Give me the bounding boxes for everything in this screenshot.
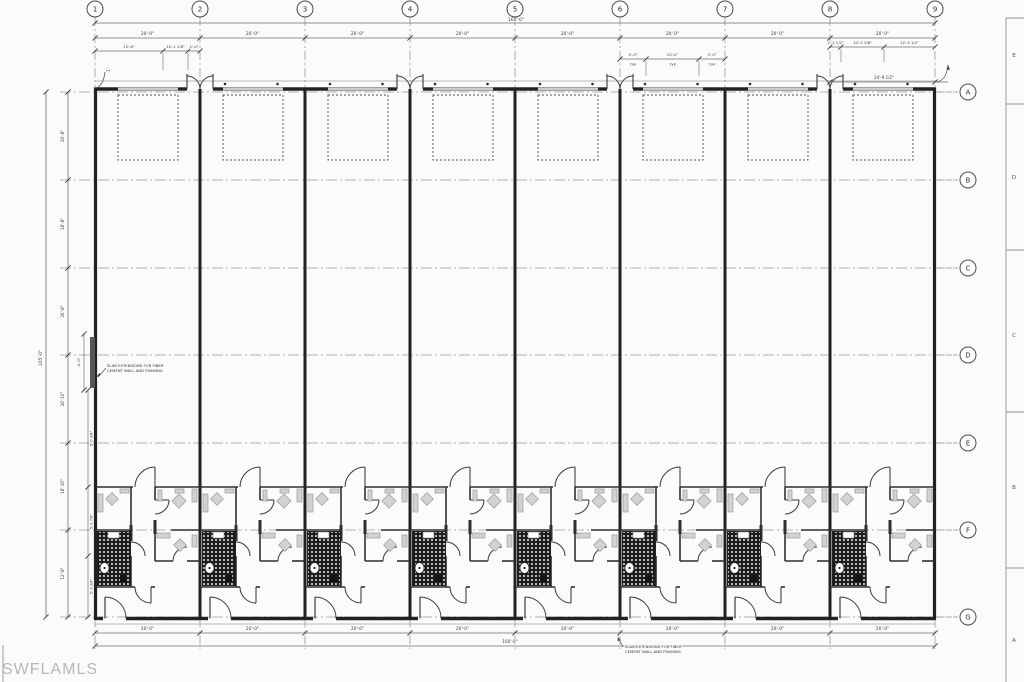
svg-text:E: E [966, 439, 970, 447]
svg-text:20'-0": 20'-0" [666, 626, 679, 632]
svg-text:CEMENT WALL AND FRAMING: CEMENT WALL AND FRAMING [625, 649, 681, 654]
svg-text:2'-1 1/2": 2'-1 1/2" [827, 40, 844, 45]
svg-text:20'-0": 20'-0" [351, 626, 364, 632]
svg-text:26'-8": 26'-8" [60, 305, 65, 317]
svg-text:20'-0": 20'-0" [141, 626, 154, 632]
svg-text:2: 2 [198, 5, 203, 14]
svg-text:4'-0": 4'-0" [76, 357, 81, 366]
svg-text:8'-0 3/4": 8'-0 3/4" [90, 430, 94, 446]
svg-text:1: 1 [93, 5, 98, 14]
svg-text:5: 5 [513, 5, 518, 14]
svg-text:12'-4 1/2": 12'-4 1/2" [900, 40, 919, 45]
svg-text:5'-0": 5'-0" [708, 52, 717, 57]
svg-text:D: D [965, 351, 970, 359]
svg-text:24'-9 1/2": 24'-9 1/2" [874, 75, 894, 80]
svg-text:F: F [966, 526, 970, 534]
svg-text:105'-0": 105'-0" [38, 350, 44, 366]
svg-text:20'-0": 20'-0" [771, 31, 784, 37]
svg-text:20'-0": 20'-0" [351, 31, 364, 37]
svg-text:TYP: TYP [708, 63, 716, 67]
svg-text:D: D [1012, 175, 1016, 181]
svg-text:20'-0": 20'-0" [456, 626, 469, 632]
svg-text:TYP: TYP [668, 63, 676, 67]
svg-text:7: 7 [723, 5, 728, 14]
svg-text:160'-0": 160'-0" [502, 639, 517, 644]
svg-text:10'-0": 10'-0" [667, 52, 679, 57]
svg-text:20'-0": 20'-0" [141, 31, 154, 37]
svg-text:5'-3 3/4": 5'-3 3/4" [90, 578, 94, 594]
svg-text:20'-0": 20'-0" [561, 31, 574, 37]
svg-text:26'-8": 26'-8" [60, 130, 65, 142]
svg-text:B: B [966, 176, 971, 184]
svg-text:18'-10": 18'-10" [60, 479, 65, 494]
svg-text:TYP: TYP [629, 63, 637, 67]
svg-text:5'-1 7/8": 5'-1 7/8" [90, 513, 94, 529]
drawing-sheet: EDCBA1'160'-0"20'-0"20'-0"20'-0"20'-0"20… [0, 0, 1024, 682]
svg-text:12'-8": 12'-8" [123, 44, 135, 49]
svg-text:G: G [965, 613, 970, 621]
svg-text:12'-8": 12'-8" [60, 567, 65, 579]
svg-text:8: 8 [828, 5, 833, 14]
svg-text:10'-2 3/8": 10'-2 3/8" [853, 40, 872, 45]
svg-text:C: C [966, 264, 971, 272]
svg-text:A: A [966, 88, 971, 96]
svg-text:A: A [1012, 638, 1016, 644]
svg-text:C: C [1012, 333, 1016, 339]
svg-text:CEMENT WALL AND FRAMING: CEMENT WALL AND FRAMING [107, 368, 163, 373]
svg-text:6: 6 [618, 5, 623, 14]
svg-text:20'-0": 20'-0" [876, 626, 889, 632]
svg-text:4: 4 [408, 5, 413, 14]
svg-text:18'-8": 18'-8" [60, 218, 65, 230]
watermark: SWFLAMLS [2, 661, 98, 679]
svg-text:20'-0": 20'-0" [876, 31, 889, 37]
svg-text:160'-0": 160'-0" [508, 17, 524, 23]
svg-text:9: 9 [933, 5, 938, 14]
svg-text:2'-0": 2'-0" [190, 44, 199, 49]
svg-text:26'-10": 26'-10" [60, 392, 65, 407]
svg-text:10'-1 1/8": 10'-1 1/8" [166, 44, 185, 49]
svg-text:1': 1' [106, 68, 111, 72]
floor-plan-drawing: EDCBA1'160'-0"20'-0"20'-0"20'-0"20'-0"20… [0, 0, 1024, 682]
svg-text:20'-0": 20'-0" [456, 31, 469, 37]
svg-text:20'-0": 20'-0" [246, 626, 259, 632]
svg-text:E: E [1012, 53, 1016, 59]
svg-text:20'-0": 20'-0" [246, 31, 259, 37]
svg-text:20'-0": 20'-0" [666, 31, 679, 37]
svg-text:20'-0": 20'-0" [561, 626, 574, 632]
svg-text:20'-0": 20'-0" [771, 626, 784, 632]
svg-text:3: 3 [303, 5, 308, 14]
svg-text:5'-0": 5'-0" [629, 52, 638, 57]
svg-text:B: B [1012, 485, 1016, 491]
